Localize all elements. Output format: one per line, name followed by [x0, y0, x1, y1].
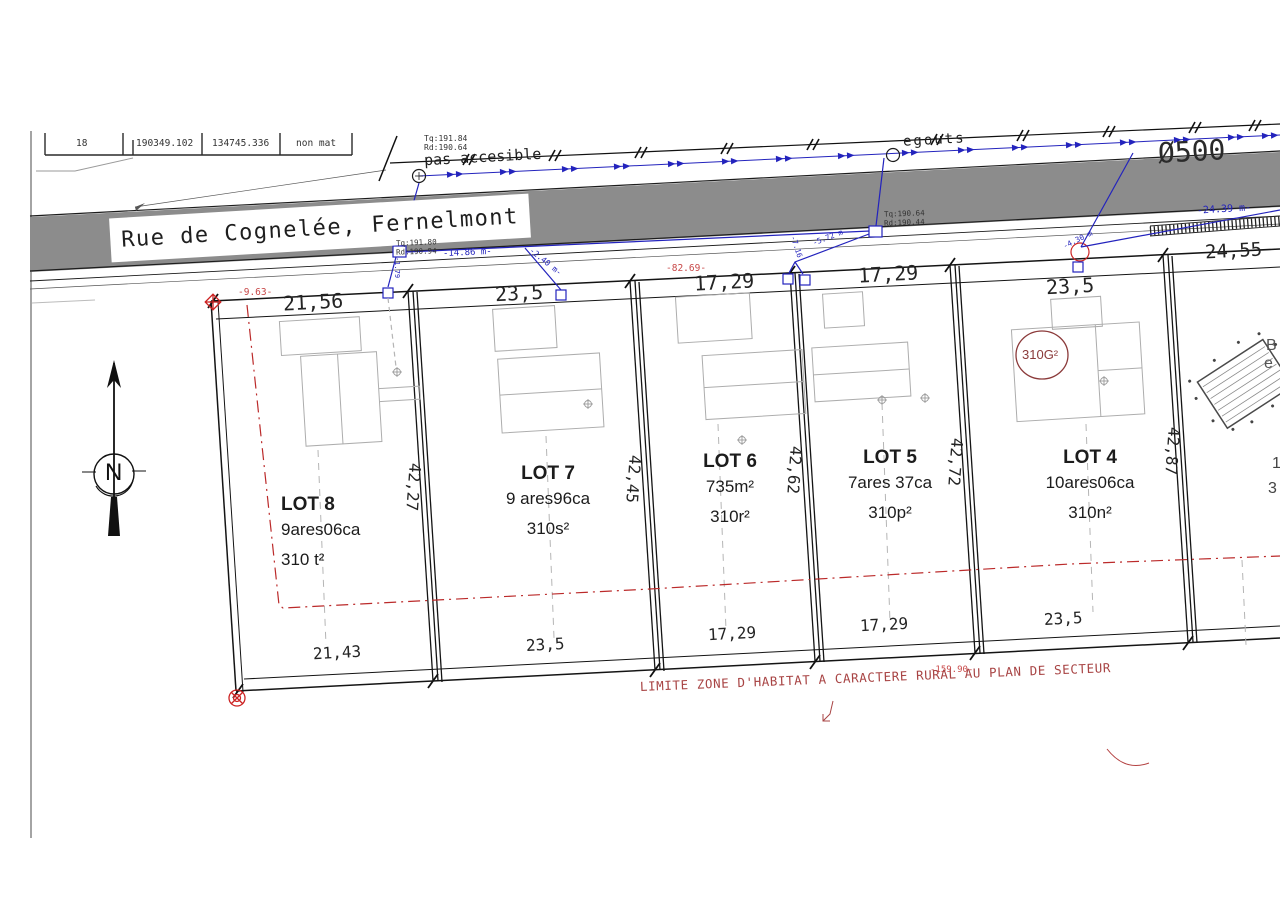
lot7-name: LOT 7: [503, 463, 593, 485]
parcel-circle-label: 310G²: [1022, 348, 1058, 361]
lot5-parcel: 310p²: [840, 503, 940, 523]
lot4-name: LOT 4: [1040, 447, 1140, 469]
zone-note-arrow: [823, 701, 833, 721]
north-arrow: [82, 360, 146, 536]
dim-top-lot8: 21,56: [283, 290, 344, 313]
dim-bottom-lot6: 17,29: [708, 625, 757, 643]
dim-bottom-lot7: 23,5: [526, 636, 565, 654]
tq-level-left: Tq:191.84: [424, 135, 467, 143]
dim-side-lot7: 42,45: [623, 449, 643, 510]
edge-fragment-3: 3: [1268, 481, 1277, 497]
rd-level-left: Rd:190.64: [424, 144, 467, 152]
survey-pins: [392, 367, 1109, 445]
lot7-label: LOT 7 9 ares96ca 310s²: [503, 463, 593, 539]
red-dim-left-offset: -9.63-: [238, 288, 272, 298]
conn-left-depth: -1.79: [393, 257, 400, 278]
lot-centre-lines: [318, 403, 1246, 645]
lot5-name: LOT 5: [840, 447, 940, 469]
faint-left-line: [32, 300, 95, 303]
dim-top-lot6: 17,29: [694, 270, 755, 293]
rd-level-conn: Rd:190.94: [396, 247, 437, 256]
lot8-parcel: 310 t²: [281, 550, 360, 570]
lot8-area: 9ares06ca: [281, 520, 360, 540]
dim-bottom-lot5: 17,29: [860, 616, 909, 634]
rd-level-mid: Rd:190.44: [884, 218, 925, 227]
lot4-parcel: 310n²: [1040, 503, 1140, 523]
dim-top-right-lot: 24,55: [1205, 241, 1263, 263]
table-leader-line: [36, 158, 133, 171]
cadastral-plan: 18 190349.102 134745.336 non mat Rue de …: [0, 0, 1280, 905]
red-arc-fragment: [1107, 749, 1149, 766]
lot5-area: 7ares 37ca: [840, 473, 940, 493]
lot7-area: 9 ares96ca: [503, 489, 593, 509]
lot8-label: LOT 8 9ares06ca 310 t²: [281, 494, 360, 570]
dim-side-lot6: 42,62: [784, 440, 804, 501]
lot5-label: LOT 5 7ares 37ca 310p²: [840, 447, 940, 523]
lot8-name: LOT 8: [281, 494, 360, 516]
dim-side-lot5: 42,72: [945, 432, 965, 493]
edge-fragment-b: B: [1266, 338, 1277, 354]
lot6-label: LOT 6 735m² 310r²: [698, 451, 762, 527]
edge-fragment-e: e: [1264, 356, 1273, 372]
lot6-area: 735m²: [698, 477, 762, 497]
egouts-label: egouts: [903, 131, 966, 148]
dim-top-lot4: 23,5: [1046, 275, 1095, 297]
table-cell-point-number: 18: [76, 139, 87, 149]
edge-fragment-1: 1: [1272, 456, 1280, 472]
lot6-name: LOT 6: [698, 451, 762, 473]
dim-top-lot5: 17,29: [858, 262, 919, 285]
dim-side-lot8: 42,27: [403, 457, 423, 518]
dim-bottom-lot4: 23,5: [1044, 610, 1083, 628]
lot4-label: LOT 4 10ares06ca 310n²: [1040, 447, 1140, 523]
table-cell-material: non mat: [296, 139, 336, 149]
lot6-parcel: 310r²: [698, 507, 762, 527]
lot7-parcel: 310s²: [503, 519, 593, 539]
table-cell-y-coord: 134745.336: [212, 139, 269, 149]
table-cell-x-coord: 190349.102: [136, 139, 193, 149]
dim-top-lot7: 23,5: [495, 282, 544, 304]
pipe-diameter-label: Ø500: [1157, 136, 1226, 168]
dim-bottom-lot8: 21,43: [313, 644, 362, 662]
lot4-area: 10ares06ca: [1040, 473, 1140, 493]
compass-north-label: N: [105, 461, 122, 485]
dim-side-lot4: 42,87: [1162, 421, 1182, 482]
